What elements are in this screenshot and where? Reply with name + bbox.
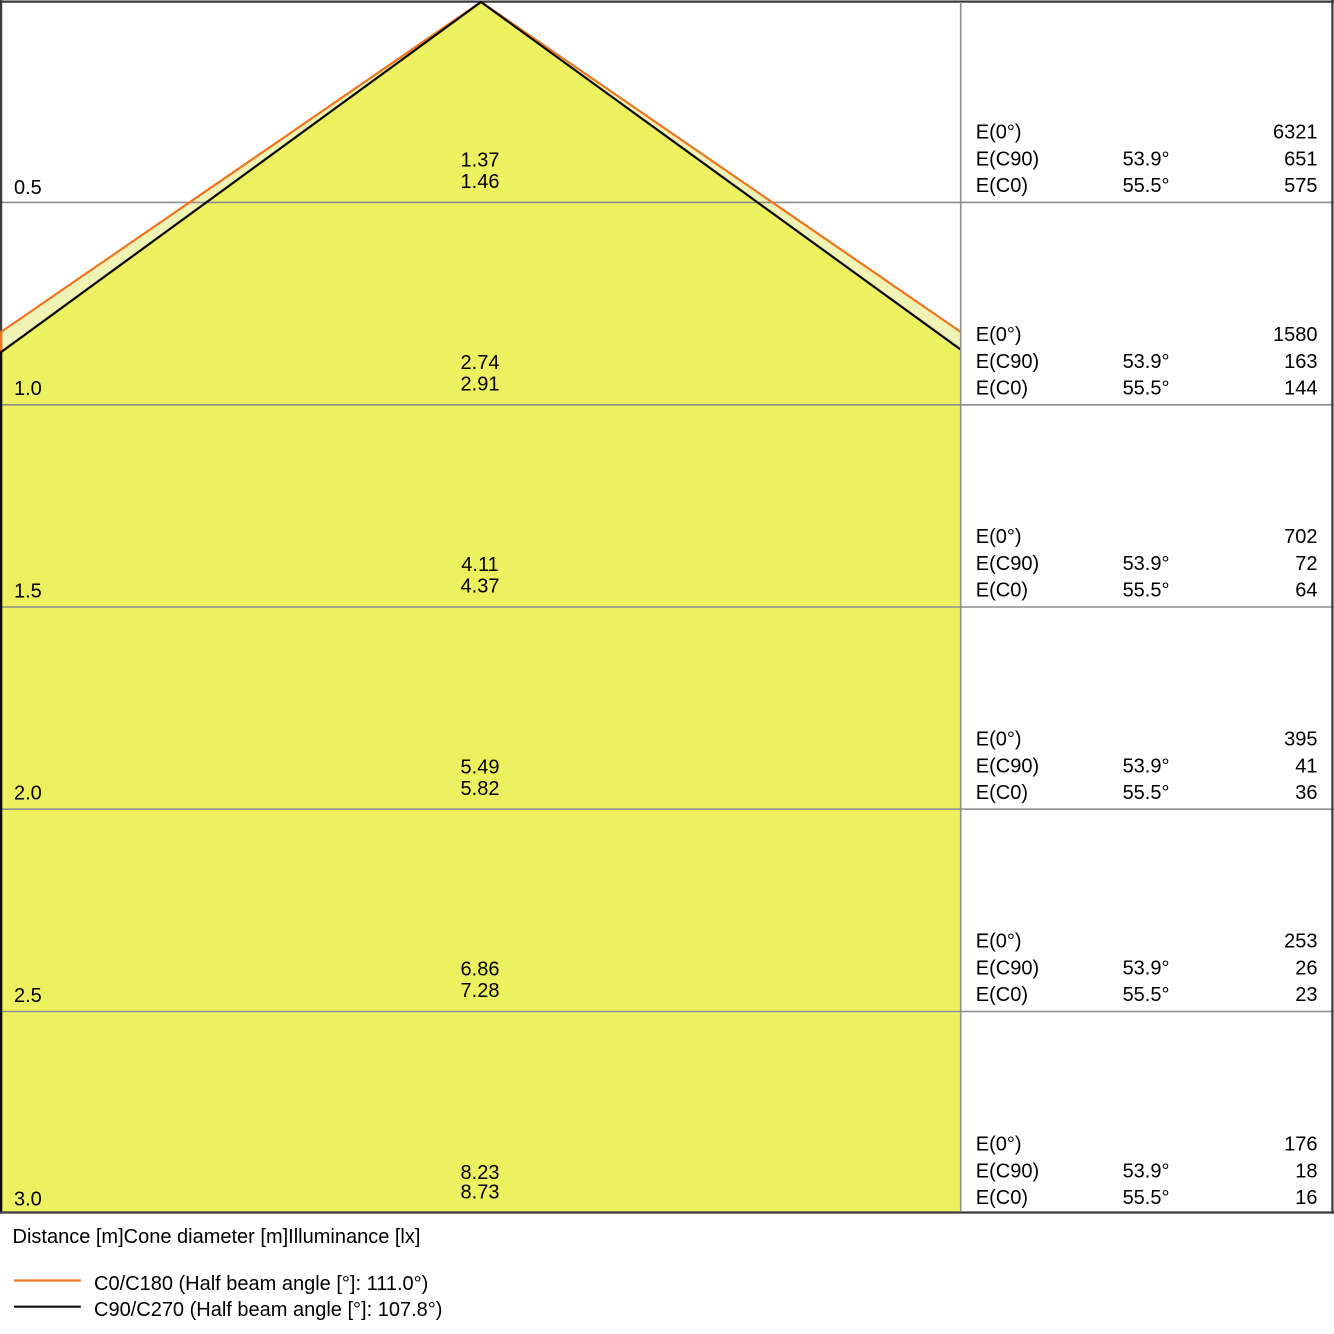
svg-text:7.28: 7.28 [461,980,500,1002]
svg-text:55.5°: 55.5° [1123,580,1170,602]
svg-text:41: 41 [1295,755,1317,777]
svg-text:1.37: 1.37 [461,150,500,172]
svg-text:2.0: 2.0 [14,783,42,805]
svg-text:253: 253 [1284,931,1317,953]
svg-text:1.0: 1.0 [14,378,42,400]
svg-text:6321: 6321 [1273,122,1318,144]
svg-text:6.86: 6.86 [461,959,500,981]
svg-text:53.9°: 53.9° [1123,755,1170,777]
svg-text:5.82: 5.82 [461,778,500,800]
svg-text:55.5°: 55.5° [1123,984,1170,1006]
svg-text:53.9°: 53.9° [1123,1161,1170,1183]
svg-text:E(C90): E(C90) [976,1161,1039,1183]
svg-text:395: 395 [1284,728,1317,750]
svg-text:2.74: 2.74 [461,352,500,374]
svg-text:163: 163 [1284,351,1317,373]
svg-text:E(C90): E(C90) [976,553,1039,575]
svg-text:55.5°: 55.5° [1123,175,1170,197]
svg-text:2.91: 2.91 [461,373,500,395]
svg-text:1.5: 1.5 [14,581,42,603]
svg-text:0.5: 0.5 [14,177,42,199]
svg-text:575: 575 [1284,175,1317,197]
svg-text:53.9°: 53.9° [1123,351,1170,373]
svg-text:1.46: 1.46 [461,171,500,193]
svg-text:E(C0): E(C0) [976,782,1028,804]
svg-text:144: 144 [1284,378,1317,400]
svg-text:8.23: 8.23 [461,1162,500,1184]
svg-text:702: 702 [1284,526,1317,548]
svg-text:1580: 1580 [1273,324,1318,346]
svg-text:55.5°: 55.5° [1123,1187,1170,1209]
svg-text:E(0°): E(0°) [976,526,1022,548]
svg-text:4.11: 4.11 [461,554,498,576]
svg-text:23: 23 [1295,984,1317,1006]
svg-text:E(0°): E(0°) [976,122,1022,144]
svg-text:176: 176 [1284,1134,1317,1156]
svg-text:E(C0): E(C0) [976,378,1028,400]
svg-text:16: 16 [1295,1187,1317,1209]
svg-text:8.73: 8.73 [461,1182,500,1204]
svg-text:72: 72 [1295,553,1317,575]
svg-text:E(C90): E(C90) [976,755,1039,777]
svg-text:E(0°): E(0°) [976,728,1022,750]
svg-text:E(0°): E(0°) [976,931,1022,953]
svg-text:53.9°: 53.9° [1123,149,1170,171]
svg-text:651: 651 [1284,149,1317,171]
svg-text:18: 18 [1295,1161,1317,1183]
svg-text:C90/C270 (Half beam angle [°]:: C90/C270 (Half beam angle [°]: 107.8°) [94,1299,442,1321]
svg-text:3.0: 3.0 [14,1189,42,1211]
svg-text:E(0°): E(0°) [976,324,1022,346]
svg-text:E(C0): E(C0) [976,175,1028,197]
svg-text:E(C0): E(C0) [976,984,1028,1006]
svg-text:26: 26 [1295,958,1317,980]
svg-text:E(C0): E(C0) [976,1187,1028,1209]
svg-text:53.9°: 53.9° [1123,553,1170,575]
svg-text:E(C90): E(C90) [976,351,1039,373]
svg-text:4.37: 4.37 [461,576,500,598]
svg-text:55.5°: 55.5° [1123,782,1170,804]
svg-text:E(C90): E(C90) [976,149,1039,171]
svg-text:36: 36 [1295,782,1317,804]
svg-text:53.9°: 53.9° [1123,958,1170,980]
svg-text:55.5°: 55.5° [1123,378,1170,400]
svg-text:Distance [m]Cone diameter [m]I: Distance [m]Cone diameter [m]Illuminance… [13,1226,421,1248]
svg-text:E(0°): E(0°) [976,1134,1022,1156]
svg-text:E(C0): E(C0) [976,580,1028,602]
svg-text:64: 64 [1295,580,1317,602]
svg-text:C0/C180 (Half beam angle [°]:: C0/C180 (Half beam angle [°]: 111.0°) [94,1273,428,1295]
svg-text:2.5: 2.5 [14,985,42,1007]
svg-text:E(C90): E(C90) [976,958,1039,980]
svg-text:5.49: 5.49 [461,756,500,778]
